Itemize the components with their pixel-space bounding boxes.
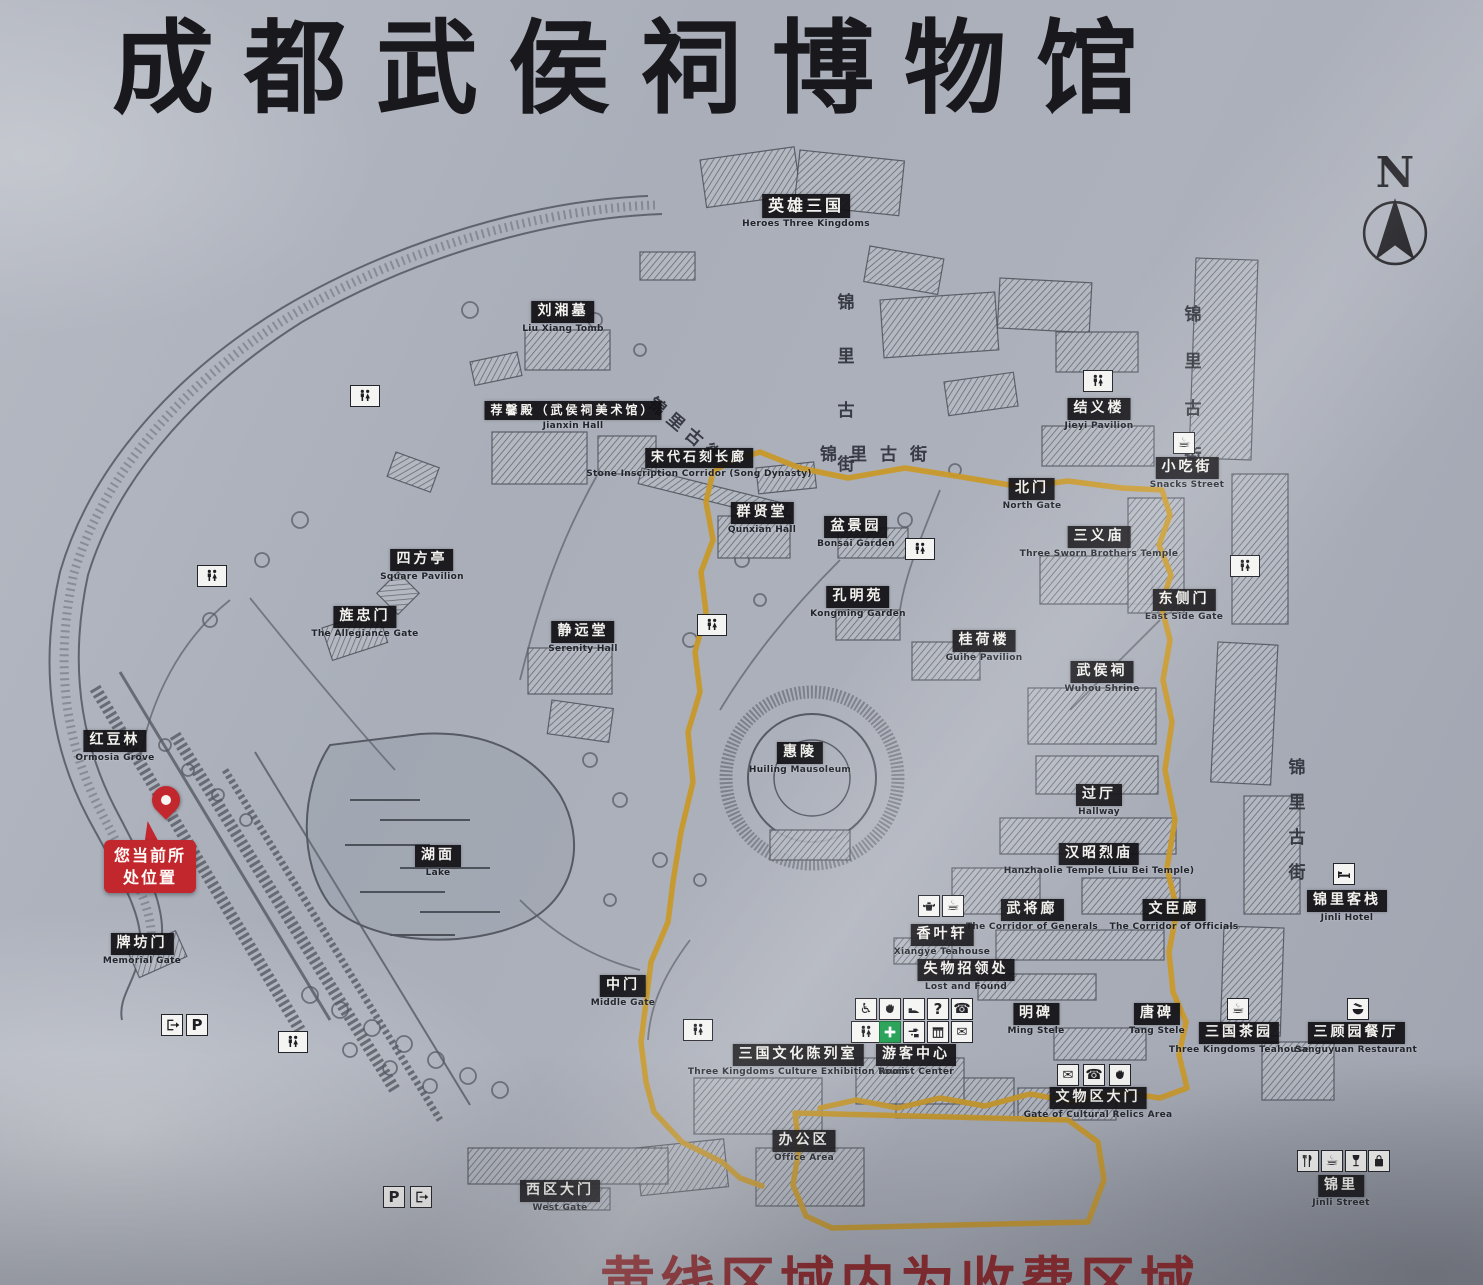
place-name-cn: 盆景园 <box>824 516 887 538</box>
place-label: 牌坊门Memorial Gate <box>103 932 181 966</box>
place-label: 办公区Office Area <box>773 1129 836 1163</box>
street-name-char: 古 <box>1183 394 1203 419</box>
place-name-en: East Side Gate <box>1145 612 1223 622</box>
place-name-en: The Corridor of Officials <box>1110 922 1239 932</box>
phone-icon: ☎ <box>951 998 973 1020</box>
place-label: 失物招领处Lost and Found <box>918 958 1015 992</box>
place-label: 旌忠门The Allegiance Gate <box>311 605 418 639</box>
place-label: 英雄三国Heroes Three Kingdoms <box>742 194 870 229</box>
place-name-en: The Allegiance Gate <box>311 629 418 639</box>
restroom-icon <box>350 385 380 407</box>
place-name-cn: 牌坊门 <box>110 933 173 955</box>
street-name-char: 里 <box>1287 788 1307 813</box>
teapot-icon <box>918 895 940 917</box>
place-label: 武侯祠Wuhou Shrine <box>1065 660 1140 694</box>
place-label: 盆景园Bonsai Garden <box>817 515 895 549</box>
place-name-cn: 汉昭烈庙 <box>1059 843 1139 865</box>
cafe-icon: ☕ <box>1173 432 1195 454</box>
street-name-char: 里 <box>1183 347 1203 372</box>
place-name-cn: 过厅 <box>1076 784 1122 806</box>
current-location-line2: 处位置 <box>114 867 186 889</box>
place-name-cn: 三顾园餐厅 <box>1307 1022 1404 1044</box>
place-label: 汉昭烈庙Hanzhaolie Temple (Liu Bei Temple) <box>1004 842 1195 876</box>
place-name-cn: 孔明苑 <box>827 586 890 608</box>
place-label: 结义楼Jieyi Pavilion <box>1065 397 1134 431</box>
place-name-cn: 西区大门 <box>520 1180 600 1202</box>
place-name-en: Jieyi Pavilion <box>1065 421 1134 431</box>
current-location-bubble: 您当前所 处位置 <box>104 840 196 893</box>
place-name-cn: 荐馨殿（武侯祠美术馆） <box>484 401 661 420</box>
place-label: 文物区大门Gate of Cultural Relics Area <box>1024 1086 1173 1120</box>
parking-icon: P <box>186 1014 208 1036</box>
place-name-cn: 刘湘墓 <box>532 301 595 323</box>
street-name-char: 锦 <box>836 288 856 313</box>
tap-icon <box>903 1021 925 1043</box>
place-name-cn: 香叶轩 <box>911 924 974 946</box>
restaurant-icon <box>1297 1150 1319 1172</box>
restroom-icon <box>851 1021 881 1043</box>
compass-arrow-icon <box>1359 194 1431 266</box>
place-name-cn: 宋代石刻长廊 <box>645 448 753 468</box>
place-label: 三国茶园Three Kingdoms Teahouse <box>1169 1021 1309 1055</box>
place-name-en: Huiling Mausoleum <box>749 765 851 775</box>
place-name-cn: 红豆林 <box>84 730 147 752</box>
place-name-en: Office Area <box>773 1153 836 1163</box>
place-name-en: Hallway <box>1076 807 1122 817</box>
place-name-cn: 办公区 <box>773 1130 836 1152</box>
place-label: 明碑Ming Stele <box>1007 1002 1064 1036</box>
restroom-icon <box>278 1031 308 1053</box>
place-name-en: North Gate <box>1003 501 1062 511</box>
parking-icon: P <box>383 1186 405 1208</box>
place-name-cn: 锦里客栈 <box>1307 890 1387 912</box>
street-name-char: 锦 <box>1183 300 1203 325</box>
place-name-en: Lake <box>415 868 461 878</box>
place-name-en: West Gate <box>520 1203 600 1213</box>
place-name-cn: 旌忠门 <box>333 606 396 628</box>
place-label: 过厅Hallway <box>1076 783 1122 817</box>
place-name-en: Stone Inscription Corridor (Song Dynasty… <box>586 469 812 479</box>
place-name-en: Heroes Three Kingdoms <box>742 219 870 229</box>
place-label: 中门Middle Gate <box>591 974 655 1008</box>
place-name-cn: 静远堂 <box>551 621 614 643</box>
place-label: 三国文化陈列室Three Kingdoms Culture Exhibition… <box>688 1043 908 1077</box>
place-name-en: Bonsai Garden <box>817 539 895 549</box>
cafe-icon: ☕ <box>1227 998 1249 1020</box>
wheelchair-icon: ♿ <box>855 998 877 1020</box>
place-name-en: Jianxin Hall <box>484 421 661 431</box>
place-name-cn: 三义庙 <box>1067 526 1130 548</box>
place-name-en: Three Kingdoms Teahouse <box>1169 1045 1309 1055</box>
place-name-cn: 三国文化陈列室 <box>733 1044 864 1066</box>
street-name-char: 街 <box>1287 858 1307 883</box>
lake <box>307 734 574 940</box>
question-icon: ? <box>927 998 949 1020</box>
place-name-cn: 锦里 <box>1318 1175 1364 1197</box>
place-name-cn: 桂荷楼 <box>953 630 1016 652</box>
place-label: 锦里Jinli Street <box>1312 1174 1369 1208</box>
place-label: 三顾园餐厅Sanguyuan Restaurant <box>1295 1021 1417 1055</box>
place-name-en: Kongming Garden <box>810 609 906 619</box>
place-name-en: Three Kingdoms Culture Exhibition Room <box>688 1067 908 1077</box>
place-name-cn: 中门 <box>600 975 646 997</box>
bag-icon <box>1368 1150 1390 1172</box>
place-name-cn: 明碑 <box>1013 1003 1059 1025</box>
place-name-en: Gate of Cultural Relics Area <box>1024 1110 1173 1120</box>
place-name-en: Lost and Found <box>918 982 1015 992</box>
map-sign-board: 成都武侯祠博物馆 N 锦里古街锦里古街锦里古街锦里古街锦里古街 英雄三国Hero… <box>0 0 1483 1285</box>
hand-icon <box>879 998 901 1020</box>
map-line-art <box>0 0 1483 1285</box>
place-label: 孔明苑Kongming Garden <box>810 585 906 619</box>
place-name-en: Wuhou Shrine <box>1065 684 1140 694</box>
place-name-cn: 武将廊 <box>1001 899 1064 921</box>
place-label: 三义庙Three Sworn Brothers Temple <box>1020 525 1179 559</box>
street-name-char: 锦 <box>1287 753 1307 778</box>
sign-title: 成都武侯祠博物馆 <box>112 6 1168 134</box>
fee-area-notice: 黄线区域内为收费区域 <box>600 1238 1200 1285</box>
street-name-char: 里 <box>836 342 856 367</box>
place-label: 四方亭Square Pavilion <box>380 548 464 582</box>
place-name-en: Liu Xiang Tomb <box>522 324 604 334</box>
place-name-cn: 湖面 <box>415 845 461 867</box>
restroom-icon <box>197 565 227 587</box>
street-name: 锦里古街 <box>1287 753 1307 893</box>
place-label: 宋代石刻长廊Stone Inscription Corridor (Song D… <box>586 446 812 479</box>
place-name-cn: 东侧门 <box>1152 589 1215 611</box>
cafe-icon: ☕ <box>1321 1150 1343 1172</box>
place-name-cn: 北门 <box>1009 478 1055 500</box>
place-label: 刘湘墓Liu Xiang Tomb <box>522 300 604 334</box>
restroom-icon <box>905 538 935 560</box>
place-label: 惠陵Huiling Mausoleum <box>749 741 851 775</box>
envelope-icon: ✉ <box>951 1021 973 1043</box>
place-name-en: Jinli Hotel <box>1307 913 1387 923</box>
place-label: 文臣廊The Corridor of Officials <box>1110 898 1239 932</box>
street-name-char: 古 <box>1287 823 1307 848</box>
place-name-en: Qunxian Hall <box>728 525 796 535</box>
place-name-en: Square Pavilion <box>380 572 464 582</box>
place-label: 湖面Lake <box>415 844 461 878</box>
restroom-icon <box>1083 370 1113 392</box>
place-name-cn: 惠陵 <box>777 742 823 764</box>
place-name-cn: 失物招领处 <box>918 959 1015 981</box>
pin-dot <box>159 793 173 807</box>
bowl-icon <box>1347 998 1369 1020</box>
cafe-icon: ☕ <box>942 895 964 917</box>
place-name-en: Ormosia Grove <box>75 753 154 763</box>
current-location-line1: 您当前所 <box>114 845 186 867</box>
place-name-cn: 武侯祠 <box>1071 661 1134 683</box>
place-label: 红豆林Ormosia Grove <box>75 729 154 763</box>
shoe-icon <box>903 998 925 1020</box>
place-name-cn: 四方亭 <box>390 549 453 571</box>
hand-icon <box>1109 1064 1131 1086</box>
kiosk-icon <box>927 1021 949 1043</box>
street-name-char: 古 <box>836 396 856 421</box>
envelope-icon: ✉ <box>1057 1064 1079 1086</box>
place-name-en: Sanguyuan Restaurant <box>1295 1045 1417 1055</box>
bed-icon <box>1333 863 1355 885</box>
place-name-en: Middle Gate <box>591 998 655 1008</box>
place-label: 香叶轩Xiangye Teahouse <box>894 923 990 957</box>
place-label: 桂荷楼Guihe Pavilion <box>946 629 1023 663</box>
exit-icon <box>161 1014 183 1036</box>
place-label: 东侧门East Side Gate <box>1145 588 1223 622</box>
restroom-icon <box>1230 555 1260 577</box>
wine-icon <box>1345 1150 1367 1172</box>
place-name-cn: 文物区大门 <box>1050 1087 1147 1109</box>
compass-north-label: N <box>1352 152 1438 194</box>
place-name-en: Hanzhaolie Temple (Liu Bei Temple) <box>1004 866 1195 876</box>
place-label: 小吃街Snacks Street <box>1150 456 1224 490</box>
place-label: 西区大门West Gate <box>520 1179 600 1213</box>
street-name: 锦里古街 <box>836 288 856 504</box>
exit-icon <box>410 1186 432 1208</box>
place-label: 北门North Gate <box>1003 477 1062 511</box>
place-name-en: Ming Stele <box>1007 1026 1064 1036</box>
place-name-en: Three Sworn Brothers Temple <box>1020 549 1179 559</box>
place-label: 锦里客栈Jinli Hotel <box>1307 889 1387 923</box>
place-name-en: Guihe Pavilion <box>946 653 1023 663</box>
place-name-cn: 文臣廊 <box>1143 899 1206 921</box>
place-name-en: Jinli Street <box>1312 1198 1369 1208</box>
restroom-icon <box>697 614 727 636</box>
place-name-cn: 三国茶园 <box>1199 1022 1279 1044</box>
place-label: 静远堂Serenity Hall <box>548 620 618 654</box>
place-label: 荐馨殿（武侯祠美术馆）Jianxin Hall <box>484 399 661 431</box>
phone-icon: ☎ <box>1083 1064 1105 1086</box>
firstaid-icon <box>879 1021 901 1043</box>
place-name-en: Serenity Hall <box>548 644 618 654</box>
place-name-cn: 英雄三国 <box>762 194 850 218</box>
place-name-cn: 结义楼 <box>1068 398 1131 420</box>
place-name-en: Xiangye Teahouse <box>894 947 990 957</box>
place-name-cn: 群贤堂 <box>730 502 793 524</box>
place-label: 群贤堂Qunxian Hall <box>728 501 796 535</box>
place-name-cn: 小吃街 <box>1156 457 1219 479</box>
compass: N <box>1352 152 1438 270</box>
street-name: 锦里古街 <box>820 440 940 465</box>
place-name-en: Snacks Street <box>1150 480 1224 490</box>
restroom-icon <box>683 1019 713 1041</box>
place-name-en: Memorial Gate <box>103 956 181 966</box>
